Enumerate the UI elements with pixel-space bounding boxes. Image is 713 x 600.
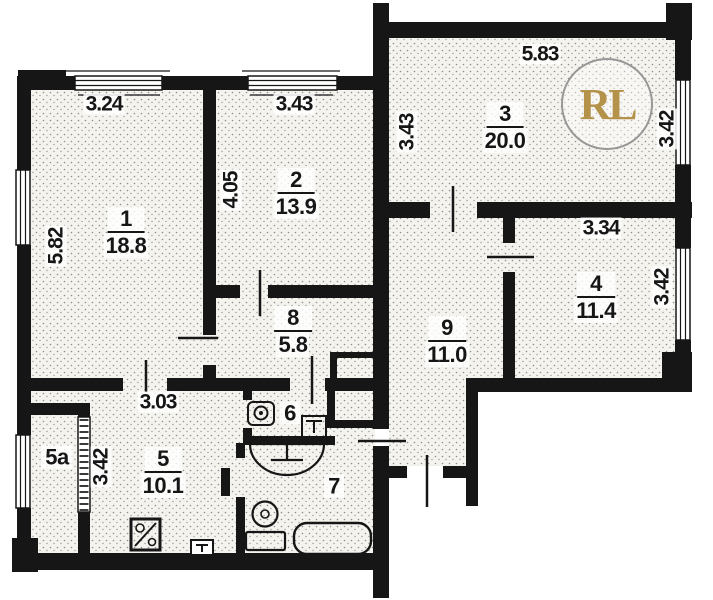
wall-segment bbox=[268, 285, 389, 298]
room1-number: 1 bbox=[107, 207, 145, 233]
room-area bbox=[389, 378, 466, 466]
wall-segment bbox=[78, 403, 90, 417]
wall-segment bbox=[466, 382, 478, 506]
room3-area: 20.0 bbox=[483, 128, 528, 152]
wall-segment bbox=[503, 218, 515, 243]
room9-number: 9 bbox=[428, 316, 466, 342]
dim-room1-width: 3.24 bbox=[84, 94, 125, 115]
vent-circle bbox=[149, 539, 156, 546]
room8-number: 8 bbox=[274, 306, 312, 332]
wall-segment bbox=[17, 403, 80, 415]
wall-segment bbox=[162, 76, 248, 90]
wall-segment bbox=[389, 202, 430, 218]
wall-segment bbox=[216, 285, 240, 298]
wall-segment bbox=[466, 378, 692, 392]
window bbox=[75, 76, 162, 90]
wall-segment bbox=[373, 3, 389, 429]
wall-segment bbox=[662, 352, 692, 378]
sink-drain-dot bbox=[259, 411, 263, 415]
wall-segment bbox=[675, 38, 691, 80]
room3-number: 3 bbox=[486, 102, 524, 128]
watermark-ring: RL bbox=[561, 58, 653, 150]
wall-segment bbox=[325, 378, 389, 391]
watermark-text: RL bbox=[579, 79, 634, 130]
room1-area: 18.8 bbox=[104, 233, 149, 257]
wall-segment bbox=[167, 378, 290, 391]
dim-room3-right: 3.42 bbox=[657, 109, 678, 150]
room5a-label: 5a bbox=[41, 446, 72, 469]
dim-room4-right: 3.42 bbox=[652, 267, 673, 308]
wall-segment bbox=[381, 466, 407, 478]
wall-segment bbox=[17, 378, 123, 391]
window bbox=[676, 248, 690, 340]
wall-segment bbox=[337, 76, 375, 90]
wall-segment bbox=[666, 3, 692, 40]
room4-number: 4 bbox=[577, 272, 615, 298]
window bbox=[248, 76, 337, 90]
wall-segment bbox=[221, 468, 230, 496]
room2-area: 13.9 bbox=[274, 194, 319, 218]
room1-label: 1 18.8 bbox=[104, 207, 149, 257]
wall-segment bbox=[243, 391, 252, 400]
dim-room4-width: 3.34 bbox=[581, 218, 622, 239]
dim-room2-depth: 4.05 bbox=[221, 170, 242, 211]
threshold-icon bbox=[191, 540, 213, 555]
room9-label: 9 11.0 bbox=[425, 316, 469, 366]
dim-room2-width: 3.43 bbox=[274, 94, 315, 115]
dim-hall-width: 3.03 bbox=[138, 392, 179, 413]
wall-segment bbox=[330, 352, 389, 358]
room5-number: 5 bbox=[144, 447, 182, 473]
wall-segment bbox=[203, 365, 216, 378]
vent-circle bbox=[136, 524, 144, 532]
wall-segment bbox=[503, 272, 515, 392]
room5a-number: 5a bbox=[41, 446, 72, 469]
dim-room5-left: 3.42 bbox=[91, 447, 112, 488]
wall-segment bbox=[78, 512, 90, 555]
room3-label: 3 20.0 bbox=[483, 102, 528, 152]
wall-segment bbox=[30, 76, 75, 90]
wall-segment bbox=[236, 497, 245, 555]
room4-area: 11.4 bbox=[574, 298, 618, 322]
room7-number: 7 bbox=[324, 475, 344, 498]
room6-label: 6 bbox=[280, 402, 300, 425]
room8-label: 8 5.8 bbox=[274, 306, 312, 356]
wall-segment bbox=[18, 70, 66, 78]
window bbox=[16, 435, 30, 508]
room7-label: 7 bbox=[324, 475, 344, 498]
room4-label: 4 11.4 bbox=[574, 272, 618, 322]
dim-room3-width: 5.83 bbox=[520, 44, 561, 65]
floorplan-canvas: 3.24 3.43 5.83 3.34 3.03 5.82 4.05 3.43 … bbox=[0, 0, 713, 600]
room9-area: 11.0 bbox=[425, 342, 469, 366]
room5-label: 5 10.1 bbox=[141, 447, 186, 497]
wall-segment bbox=[327, 420, 380, 428]
room2-label: 2 13.9 bbox=[274, 168, 319, 218]
wall-segment bbox=[236, 443, 245, 458]
wall-segment bbox=[17, 76, 31, 170]
window bbox=[16, 170, 30, 245]
room2-number: 2 bbox=[277, 168, 315, 194]
wall-segment bbox=[373, 22, 675, 38]
room5-area: 10.1 bbox=[141, 473, 186, 497]
room8-area: 5.8 bbox=[274, 332, 312, 356]
wall-segment bbox=[203, 90, 216, 335]
dim-room3-depth: 3.43 bbox=[397, 112, 418, 153]
dim-room1-depth: 5.82 bbox=[46, 226, 67, 267]
room6-number: 6 bbox=[280, 402, 300, 425]
